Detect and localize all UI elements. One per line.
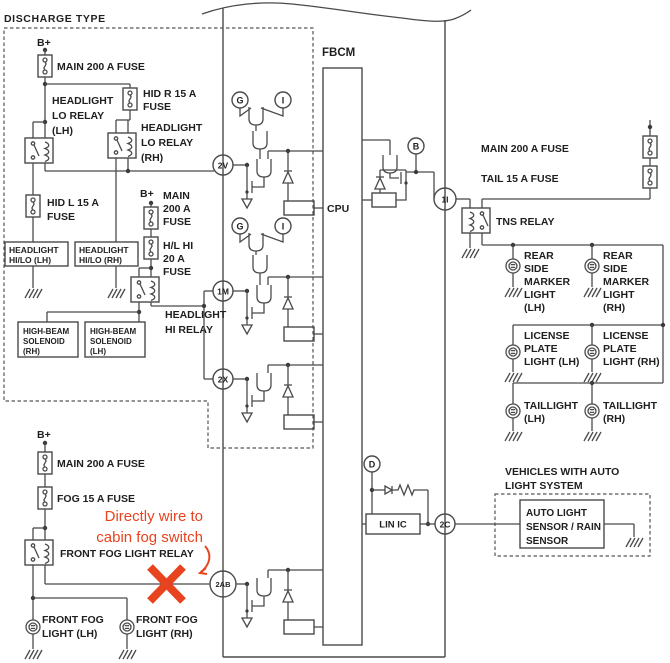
fog-lh-label-1: FRONT FOG <box>42 614 104 626</box>
marker-rh-label-1: REAR <box>603 250 633 262</box>
lo-relay-lh-label-3: (LH) <box>52 125 73 137</box>
marker-lh-label-2: SIDE <box>524 263 549 275</box>
ref-d: D <box>369 460 376 470</box>
ref-g-1: G <box>236 96 243 106</box>
ground-icon <box>505 432 522 441</box>
ground-icon <box>108 289 125 298</box>
hl-hi-20a-fuse <box>144 237 158 259</box>
b-plus-2-label: B+ <box>140 188 154 200</box>
marker-lh-label-5: (LH) <box>524 302 545 314</box>
sol-rh-label-1: HIGH-BEAM <box>23 327 70 336</box>
fog-rh-label-2: LIGHT (RH) <box>136 628 193 640</box>
main-200a-fuse-1 <box>38 55 52 77</box>
connector-2ab: 2AB <box>215 580 231 589</box>
hid-r-15a-fuse <box>123 88 137 110</box>
main-200a-fuse-1-label: MAIN 200 A FUSE <box>57 61 145 73</box>
tns-main-200a-fuse <box>643 136 657 158</box>
hid-r-fuse-label-2: FUSE <box>143 101 171 113</box>
taillight-lh-bulb <box>506 404 520 418</box>
fbcm-box <box>223 8 445 657</box>
sol-rh-label-3: (RH) <box>23 347 40 356</box>
connector-2c: 2C <box>440 520 451 530</box>
marker-lh-label-1: REAR <box>524 250 554 262</box>
taillight-rh-label-2: (RH) <box>603 413 625 425</box>
tns-relay <box>462 208 490 233</box>
ground-icon <box>584 288 601 297</box>
fog-lh-label-2: LIGHT (LH) <box>42 628 97 640</box>
fog-rh-label-1: FRONT FOG <box>136 614 198 626</box>
main-fuse-2-label-3: FUSE <box>163 216 191 228</box>
taillight-lh-label-1: TAILLIGHT <box>524 400 579 412</box>
auto-title-line-1: VEHICLES WITH AUTO <box>505 466 619 478</box>
auto-sensor-label-3: SENSOR <box>526 536 569 547</box>
fbcm-driver-2x <box>233 363 323 429</box>
license-rh-label-3: LIGHT (RH) <box>603 356 660 368</box>
fog-main-fuse-label: MAIN 200 A FUSE <box>57 458 145 470</box>
front-fog-light-lh-bulb <box>26 620 40 634</box>
lo-relay-rh-label-3: (RH) <box>141 152 163 164</box>
ref-b: B <box>413 142 420 152</box>
connector-1m: 1M <box>217 287 229 297</box>
b-plus-3-label: B+ <box>37 429 51 441</box>
ref-i-2: I <box>282 222 285 232</box>
ground-icon <box>25 289 42 298</box>
hi-relay-label-1: HEADLIGHT <box>165 309 227 321</box>
ground-icon <box>626 538 643 547</box>
fog-15a-fuse <box>38 487 52 509</box>
ground-icon <box>119 650 136 659</box>
wiring-diagram: FBCM CPU DISCHARGE TYPE B+ MAIN 200 A FU… <box>0 0 670 663</box>
ground-icon <box>505 288 522 297</box>
connector-1i: 1I <box>441 195 448 205</box>
headlight-lo-relay-lh <box>25 138 53 163</box>
sol-lh-label-2: SOLENOID <box>90 337 132 346</box>
license-rh-label-2: PLATE <box>603 343 637 355</box>
fog-fuse-label: FOG 15 A FUSE <box>57 493 135 505</box>
page-tear-curve <box>202 3 471 21</box>
marker-lh-label-3: MARKER <box>524 276 570 288</box>
main-fuse-2-label-1: MAIN <box>163 190 190 202</box>
fog-main-200a-fuse <box>38 452 52 474</box>
lin-ic-block: D LIN IC <box>362 456 435 534</box>
ground-icon <box>584 373 601 382</box>
license-lh-label-1: LICENSE <box>524 330 570 342</box>
hilo-lh-label-2: HI/LO (LH) <box>9 255 51 265</box>
ground-icon <box>584 432 601 441</box>
ref-i-1: I <box>282 96 285 106</box>
lo-relay-rh-label-1: HEADLIGHT <box>141 122 203 134</box>
lin-ic-label: LIN IC <box>379 520 407 531</box>
tns-relay-label: TNS RELAY <box>496 216 555 228</box>
sol-rh-label-2: SOLENOID <box>23 337 65 346</box>
license-rh-label-1: LICENSE <box>603 330 649 342</box>
auto-sensor-label-2: SENSOR / RAIN <box>526 522 601 533</box>
discharge-type-label: DISCHARGE TYPE <box>4 13 106 25</box>
auto-light-section: VEHICLES WITH AUTO LIGHT SYSTEM AUTO LIG… <box>455 466 650 556</box>
lo-relay-lh-label-1: HEADLIGHT <box>52 95 114 107</box>
license-lh-label-2: PLATE <box>524 343 558 355</box>
tail-fuse-label: TAIL 15 A FUSE <box>481 173 559 185</box>
tns-main-fuse-label: MAIN 200 A FUSE <box>481 143 569 155</box>
taillight-lh-label-2: (LH) <box>524 413 545 425</box>
front-fog-light-rh-bulb <box>120 620 134 634</box>
license-plate-rh-bulb <box>585 345 599 359</box>
ground-icon <box>25 650 42 659</box>
main-200a-fuse-2 <box>144 207 158 229</box>
lo-relay-lh-label-2: LO RELAY <box>52 110 104 122</box>
marker-rh-label-2: SIDE <box>603 263 628 275</box>
auto-sensor-label-1: AUTO LIGHT <box>526 508 587 519</box>
taillight-rh-bulb <box>585 404 599 418</box>
hl-hi-fuse-label-3: FUSE <box>163 266 191 278</box>
cpu-box <box>323 68 362 645</box>
hid-l-15a-fuse <box>26 195 40 217</box>
hl-hi-fuse-label-2: 20 A <box>163 253 185 265</box>
fbcm-driver-2v: G I <box>232 92 323 215</box>
auto-title-line-2: LIGHT SYSTEM <box>505 480 583 492</box>
sol-lh-label-1: HIGH-BEAM <box>90 327 137 336</box>
hid-l-fuse-label-2: FUSE <box>47 211 75 223</box>
connector-2v: 2V <box>218 161 229 171</box>
discharge-section: B+ MAIN 200 A FUSE HID R 15 A FUSE HEADL… <box>5 37 227 379</box>
marker-rh-label-3: MARKER <box>603 276 649 288</box>
fog-note-arrowhead <box>200 568 207 574</box>
ref-g-2: G <box>236 222 243 232</box>
fbcm-driver-1i: B <box>362 138 434 207</box>
ground-icon <box>505 373 522 382</box>
front-fog-light-relay <box>25 540 53 565</box>
lo-relay-rh-label-2: LO RELAY <box>141 137 193 149</box>
cpu-label: CPU <box>327 203 349 215</box>
license-lh-label-3: LIGHT (LH) <box>524 356 579 368</box>
hilo-lh-label-1: HEADLIGHT <box>9 245 59 255</box>
rear-side-marker-rh-bulb <box>585 259 599 273</box>
hid-l-fuse-label-1: HID L 15 A <box>47 197 99 209</box>
marker-rh-label-4: LIGHT <box>603 289 635 301</box>
taillight-rh-label-1: TAILLIGHT <box>603 400 658 412</box>
hilo-rh-label-2: HI/LO (RH) <box>79 255 122 265</box>
fog-note-line-1: Directly wire to <box>105 508 203 525</box>
sol-lh-label-3: (LH) <box>90 347 106 356</box>
hl-hi-fuse-label-1: H/L HI <box>163 240 193 252</box>
marker-rh-label-5: (RH) <box>603 302 625 314</box>
license-plate-lh-bulb <box>506 345 520 359</box>
b-plus-1-label: B+ <box>37 37 51 49</box>
rear-side-marker-lh-bulb <box>506 259 520 273</box>
hid-r-fuse-label-1: HID R 15 A <box>143 88 197 100</box>
fog-note-line-2: cabin fog switch <box>96 529 203 546</box>
fog-relay-label: FRONT FOG LIGHT RELAY <box>60 548 194 560</box>
fbcm-driver-2ab <box>236 568 323 634</box>
fbcm-label: FBCM <box>322 47 355 59</box>
main-fuse-2-label-2: 200 A <box>163 203 191 215</box>
headlight-hi-relay <box>131 277 159 302</box>
ground-icon <box>462 249 479 258</box>
connector-2x: 2X <box>218 375 229 385</box>
marker-lh-label-4: LIGHT <box>524 289 556 301</box>
fbcm-driver-1m: G I <box>232 218 323 341</box>
hi-relay-label-2: HI RELAY <box>165 324 213 336</box>
headlight-lo-relay-rh <box>108 133 136 158</box>
wiring-diagram-canvas: FBCM CPU DISCHARGE TYPE B+ MAIN 200 A FU… <box>0 0 670 663</box>
tail-15a-fuse <box>643 166 657 188</box>
fog-section: B+ MAIN 200 A FUSE FOG 15 A FUSE FRONT F… <box>25 429 210 659</box>
hilo-rh-label-1: HEADLIGHT <box>79 245 129 255</box>
